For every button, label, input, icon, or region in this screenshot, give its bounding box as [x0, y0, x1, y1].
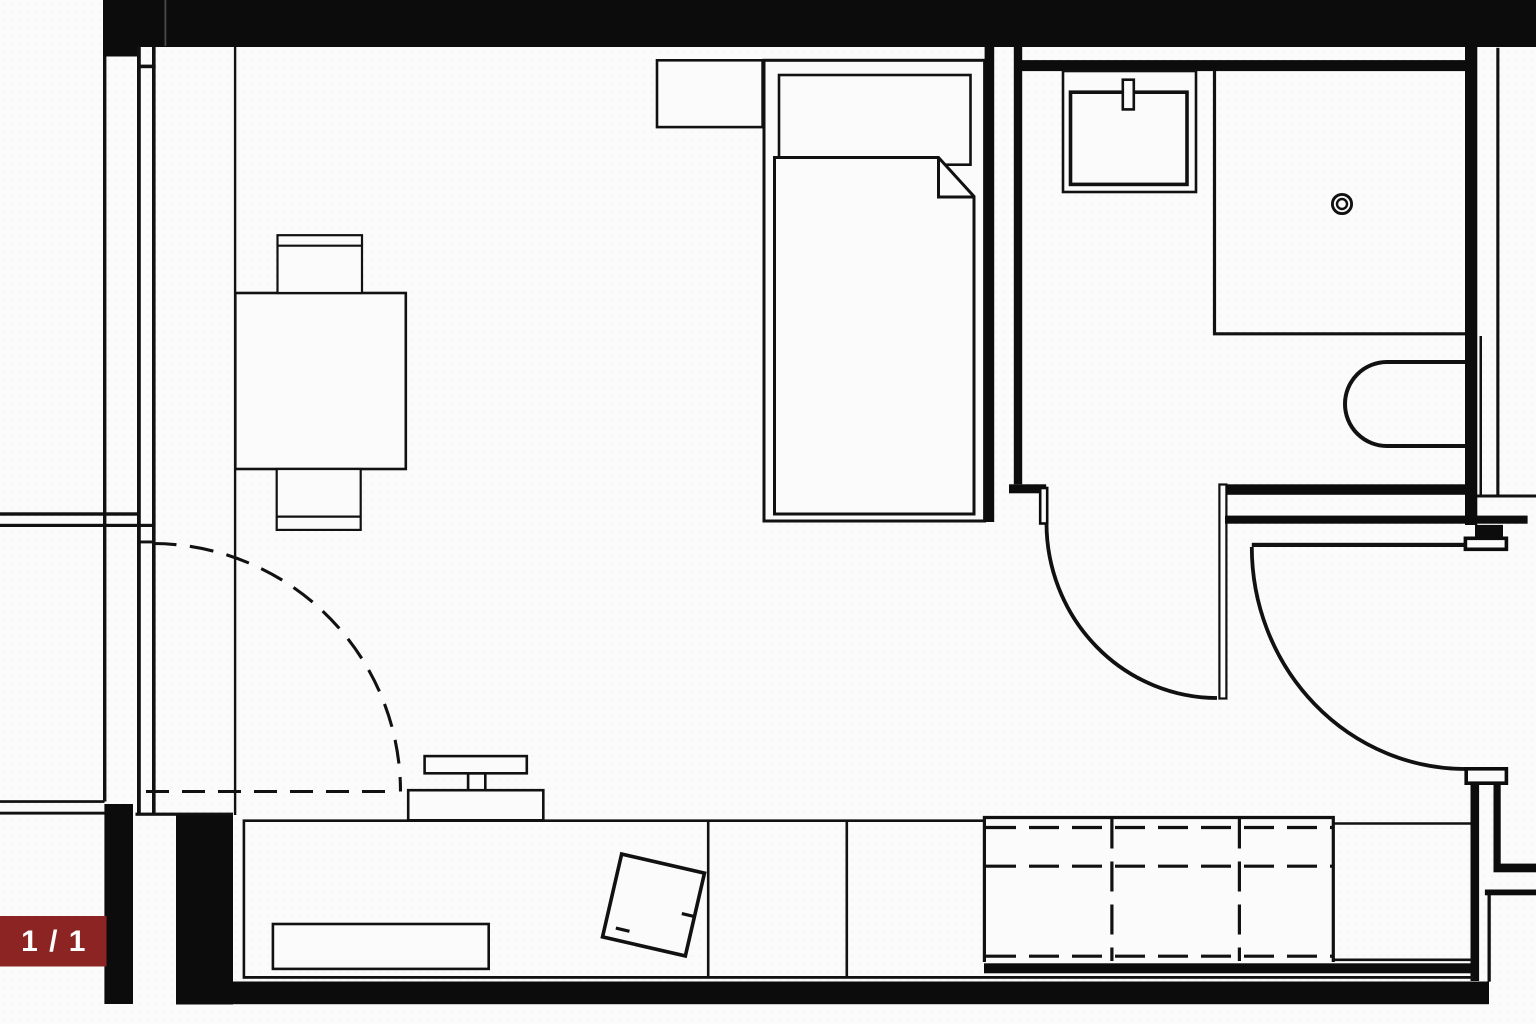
svg-text:1 / 1: 1 / 1: [21, 925, 87, 958]
